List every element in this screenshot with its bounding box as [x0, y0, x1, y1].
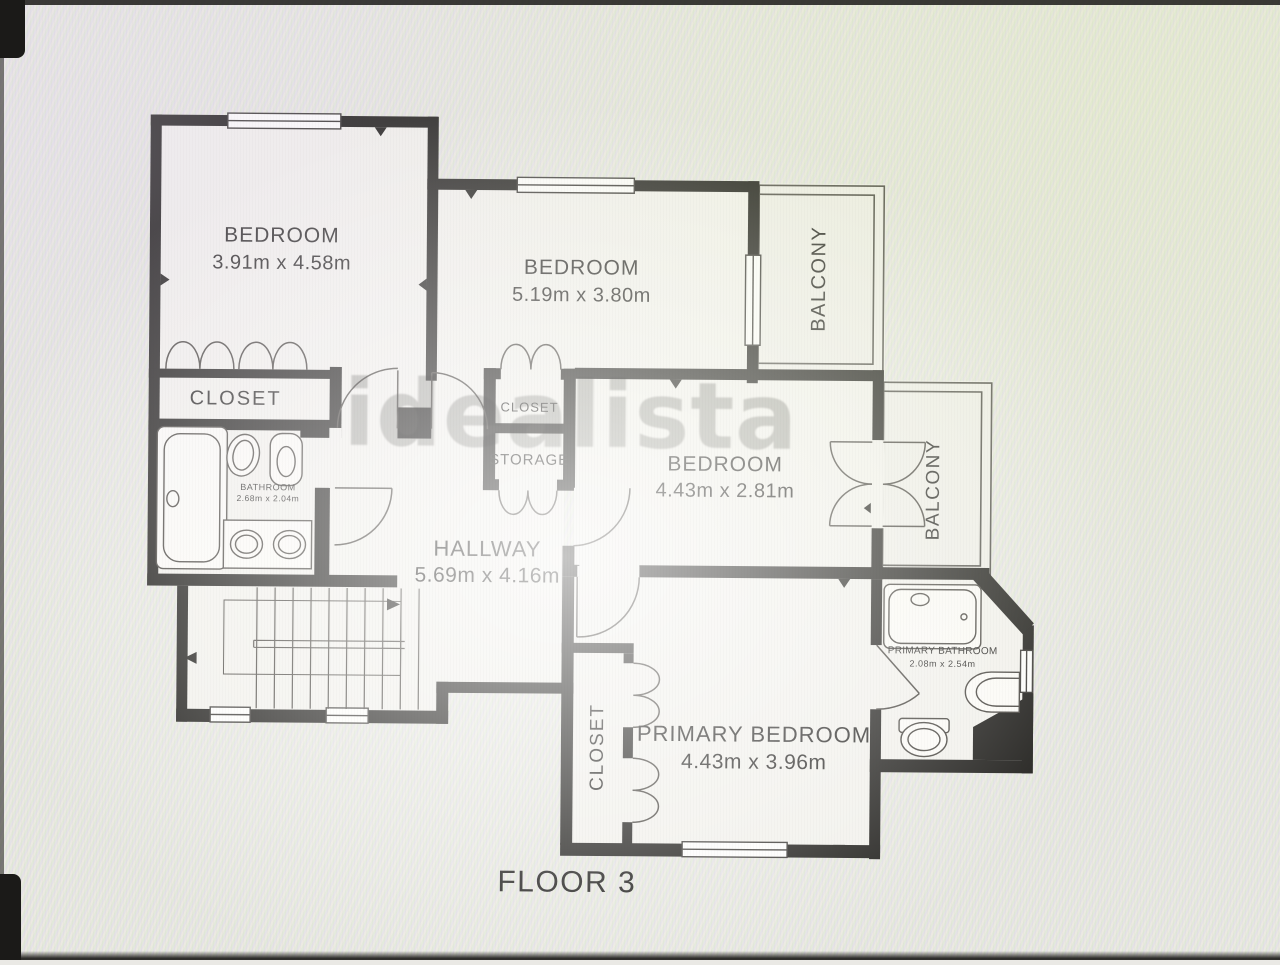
room-label-bedroom-top-left: BEDROOM 3.91m x 4.58m — [212, 224, 351, 274]
room-label-bedroom-top-mid: BEDROOM 5.19m x 3.80m — [512, 257, 651, 307]
bathtub-icon — [156, 427, 227, 570]
toilet-icon-primary — [899, 718, 949, 756]
room-label-balcony-right: BALCONY — [924, 439, 945, 540]
bidet-icon — [270, 433, 302, 485]
room-label-closet-mid: CLOSET — [501, 400, 559, 414]
room-label-bathroom: BATHROOM 2.68m x 2.04m — [236, 483, 299, 504]
sink-icon — [965, 672, 1019, 712]
window-stairs-2 — [326, 708, 368, 723]
shower-tub-icon — [884, 584, 981, 649]
window-primary-bedroom — [682, 842, 787, 858]
floor-plan-drawing — [0, 0, 1280, 965]
room-label-closet-left: CLOSET — [190, 388, 282, 410]
floor-title: FLOOR 3 — [497, 865, 636, 900]
room-label-balcony-top: BALCONY — [809, 226, 831, 332]
room-label-hallway: HALLWAY 5.69m x 4.16m — [414, 536, 560, 587]
room-label-primary-bedroom: PRIMARY BEDROOM 4.43m x 3.96m — [637, 722, 872, 775]
room-label-storage: STORAGE — [489, 452, 569, 468]
floor-plan: idealista BEDROOM 3.91m x 4.58m BEDROOM … — [0, 0, 1280, 965]
window-bedroom-top-mid — [517, 177, 634, 193]
double-sink-vanity-icon — [223, 520, 311, 569]
room-label-bedroom-mid-right: BEDROOM 4.43m x 2.81m — [655, 453, 794, 502]
window-balcony-top — [745, 255, 761, 345]
window-primary-bathroom — [1020, 650, 1032, 692]
screenshot-root: { "floor_label": "FLOOR 3", "watermark":… — [0, 0, 1280, 960]
window-stairs-1 — [210, 707, 250, 722]
room-label-primary-bathroom: PRIMARY BATHROOM 2.08m x 2.54m — [888, 646, 998, 669]
window-bedroom-top-left — [228, 113, 341, 129]
room-label-closet-primary: CLOSET — [588, 703, 609, 791]
